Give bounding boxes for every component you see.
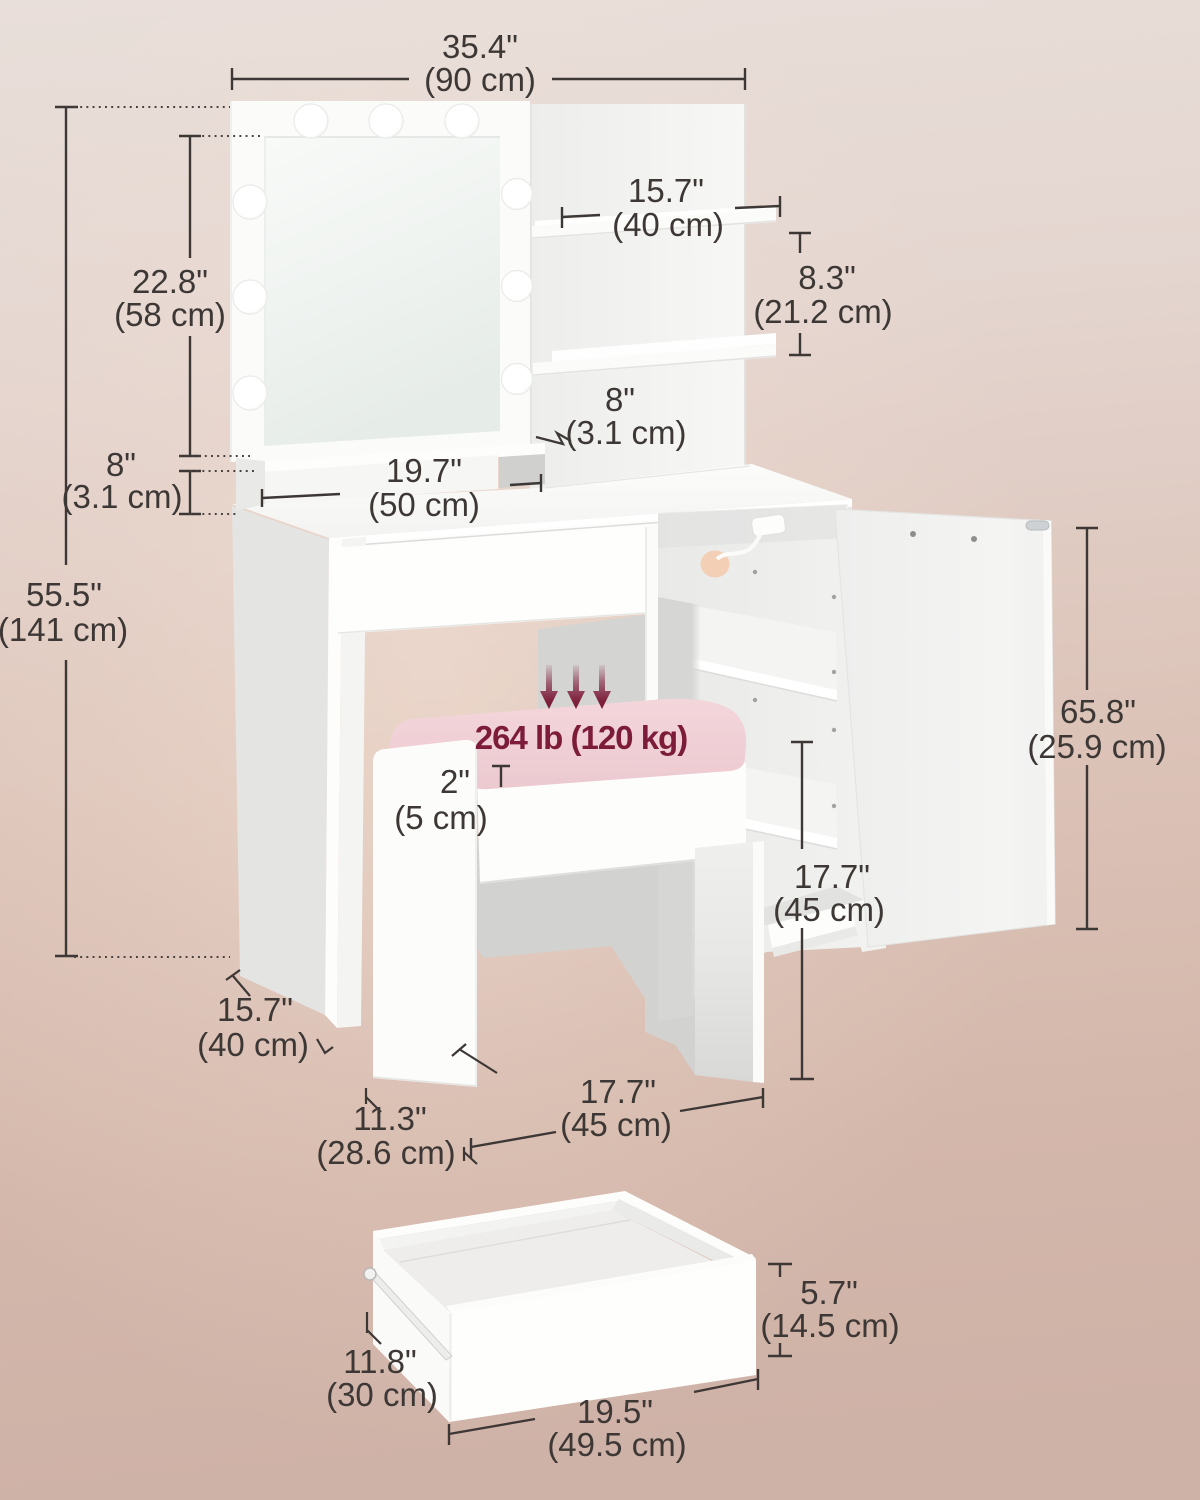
svg-text:(28.6 cm): (28.6 cm) — [316, 1134, 455, 1171]
svg-text:8.3": 8.3" — [798, 259, 856, 296]
svg-text:22.8": 22.8" — [132, 263, 208, 300]
svg-text:11.3": 11.3" — [353, 1100, 427, 1137]
svg-text:15.7": 15.7" — [628, 172, 704, 209]
svg-text:(49.5 cm): (49.5 cm) — [547, 1426, 686, 1463]
svg-text:(58 cm): (58 cm) — [114, 296, 226, 333]
svg-text:(25.9 cm): (25.9 cm) — [1027, 728, 1166, 765]
svg-text:(45 cm): (45 cm) — [560, 1106, 672, 1143]
svg-text:(45 cm): (45 cm) — [773, 891, 885, 928]
svg-text:(141 cm): (141 cm) — [0, 611, 128, 648]
svg-text:(30 cm): (30 cm) — [326, 1376, 438, 1413]
svg-text:(14.5 cm): (14.5 cm) — [760, 1307, 899, 1344]
svg-text:2": 2" — [440, 763, 470, 800]
svg-text:65.8": 65.8" — [1060, 693, 1136, 730]
svg-text:(40 cm): (40 cm) — [197, 1026, 309, 1063]
svg-text:5.7": 5.7" — [800, 1274, 858, 1311]
svg-text:35.4": 35.4" — [442, 28, 518, 65]
svg-text:(21.2 cm): (21.2 cm) — [753, 293, 892, 330]
svg-text:(3.1 cm): (3.1 cm) — [565, 414, 686, 451]
svg-text:264 lb (120 kg): 264 lb (120 kg) — [475, 719, 687, 756]
svg-text:(3.1 cm): (3.1 cm) — [61, 478, 182, 515]
svg-text:55.5": 55.5" — [26, 576, 102, 613]
svg-text:17.7": 17.7" — [580, 1073, 656, 1110]
svg-text:(50 cm): (50 cm) — [368, 486, 480, 523]
svg-text:8": 8" — [605, 381, 635, 418]
svg-text:(40 cm): (40 cm) — [612, 206, 724, 243]
svg-text:19.5": 19.5" — [577, 1393, 653, 1430]
svg-text:11.8": 11.8" — [343, 1343, 417, 1380]
svg-text:19.7": 19.7" — [386, 452, 462, 489]
svg-text:17.7": 17.7" — [794, 858, 870, 895]
svg-text:(90 cm): (90 cm) — [424, 61, 536, 98]
svg-text:(5 cm): (5 cm) — [394, 799, 488, 836]
svg-text:15.7": 15.7" — [217, 991, 293, 1028]
